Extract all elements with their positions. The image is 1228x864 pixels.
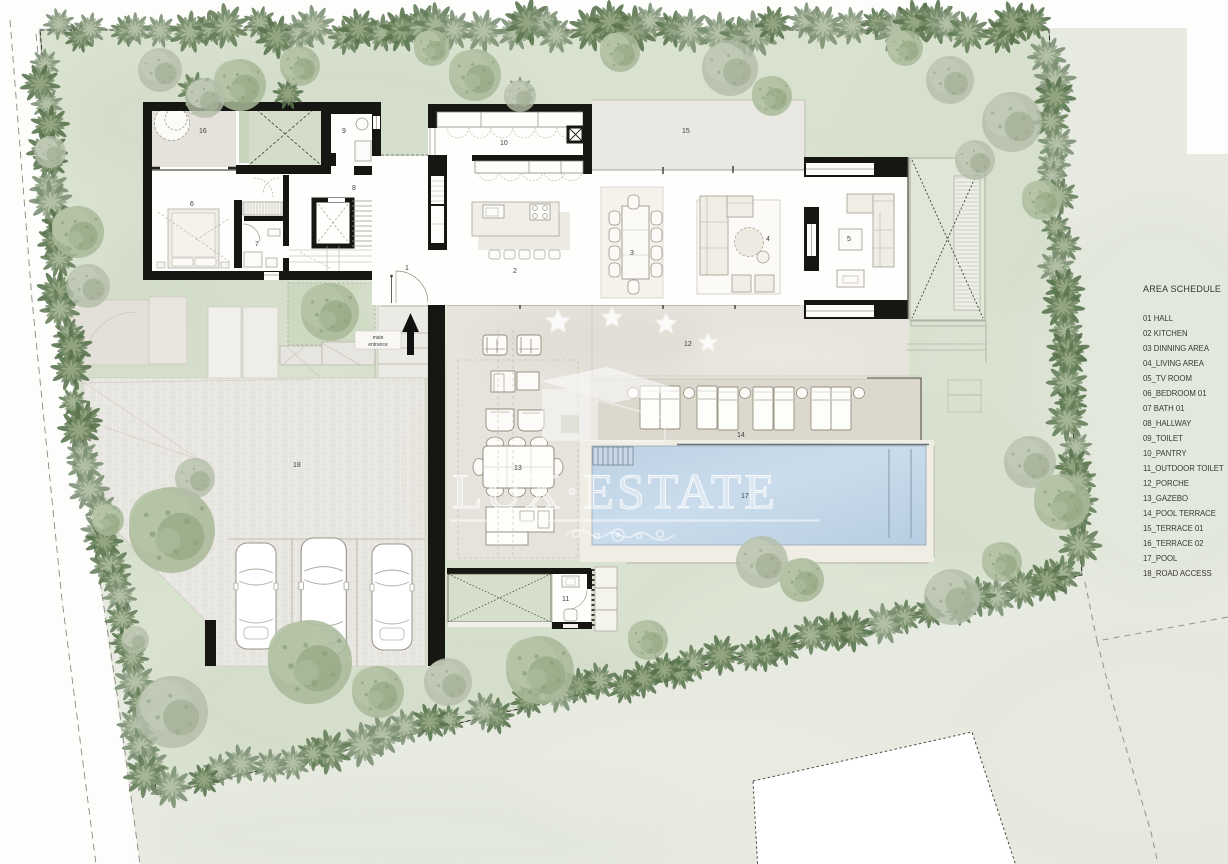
svg-text:2: 2 (513, 268, 517, 275)
svg-text:18_ROAD ACCESS: 18_ROAD ACCESS (1143, 569, 1212, 578)
svg-text:main: main (373, 335, 384, 341)
svg-text:16: 16 (199, 128, 207, 135)
svg-text:14_POOL TERRACE: 14_POOL TERRACE (1143, 509, 1216, 518)
svg-text:09_TOILET: 09_TOILET (1143, 434, 1183, 443)
svg-text:7: 7 (255, 241, 259, 248)
svg-text:13_GAZEBO: 13_GAZEBO (1143, 494, 1188, 503)
svg-text:18: 18 (293, 462, 301, 469)
svg-text:entrance: entrance (368, 342, 388, 348)
svg-text:16_TERRACE 02: 16_TERRACE 02 (1143, 539, 1203, 548)
svg-text:5: 5 (847, 236, 851, 243)
svg-text:12_PORCHE: 12_PORCHE (1143, 479, 1189, 488)
svg-text:11: 11 (562, 596, 569, 603)
svg-text:11_OUTDOOR TOILET: 11_OUTDOOR TOILET (1143, 464, 1224, 473)
svg-text:AREA SCHEDULE: AREA SCHEDULE (1143, 284, 1221, 294)
svg-text:3: 3 (630, 250, 634, 257)
svg-text:15: 15 (682, 128, 690, 135)
svg-text:07 BATH 01: 07 BATH 01 (1143, 404, 1184, 413)
svg-text:1: 1 (405, 265, 409, 272)
svg-text:10: 10 (500, 140, 508, 147)
svg-text:04_LIVING AREA: 04_LIVING AREA (1143, 359, 1205, 368)
svg-text:17_POOL: 17_POOL (1143, 554, 1178, 563)
svg-text:6: 6 (190, 201, 194, 208)
svg-text:4: 4 (766, 236, 770, 243)
svg-text:06_BEDROOM 01: 06_BEDROOM 01 (1143, 389, 1206, 398)
svg-text:8: 8 (352, 185, 356, 192)
svg-text:10_PANTRY: 10_PANTRY (1143, 449, 1187, 458)
svg-text:03 DINNING AREA: 03 DINNING AREA (1143, 344, 1210, 353)
svg-text:12: 12 (684, 341, 692, 348)
svg-text:05_TV ROOM: 05_TV ROOM (1143, 374, 1192, 383)
svg-text:14: 14 (737, 432, 745, 439)
svg-text:02 KITCHEN: 02 KITCHEN (1143, 329, 1188, 338)
svg-text:08_HALLWAY: 08_HALLWAY (1143, 419, 1192, 428)
svg-text:9: 9 (342, 128, 346, 135)
svg-text:15_TERRACE 01: 15_TERRACE 01 (1143, 524, 1203, 533)
svg-text:01 HALL: 01 HALL (1143, 314, 1174, 323)
svg-text:LUX·ESTATE: LUX·ESTATE (452, 463, 778, 519)
